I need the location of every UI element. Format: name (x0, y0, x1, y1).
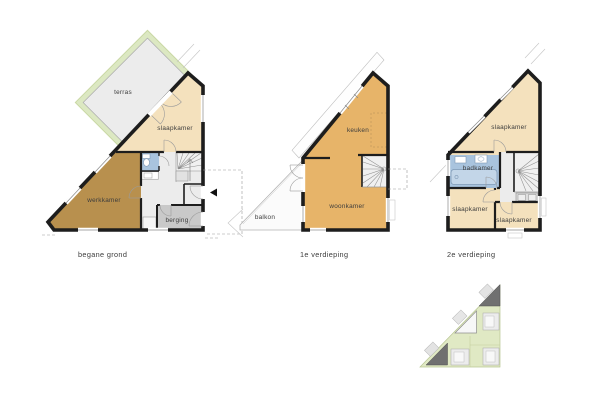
neighbour-outline (228, 209, 243, 237)
plot-dashes (42, 235, 218, 238)
floor-title-2e-verdieping: 2e verdieping (447, 250, 495, 259)
room-label-slaapkamer-boven: slaapkamer (491, 124, 527, 131)
plan-begane-grond: terras slaapkamer werkkamer berging bega… (42, 30, 243, 259)
stair-spiral (362, 155, 388, 187)
room-werkkamer (48, 152, 141, 230)
room-label-badkamer: badkamer (463, 165, 494, 172)
floorplan-sheet: terras slaapkamer werkkamer berging bega… (0, 0, 600, 400)
plot-boundary-dashed (388, 169, 407, 189)
room-label-keuken: keuken (347, 127, 369, 134)
floor-title-begane-grond: begane grond (78, 250, 127, 259)
room-label-werkkamer: werkkamer (86, 197, 121, 204)
room-label-terras: terras (114, 89, 132, 96)
washbasin-room (142, 172, 159, 180)
room-label-berging: berging (165, 217, 188, 224)
stair-spiral (514, 152, 540, 192)
plan-1e-verdieping: balkon keuken woonkamer 1e verdieping (240, 52, 407, 259)
room-label-woonkamer: woonkamer (328, 203, 365, 210)
appliance-counter (516, 193, 538, 202)
floorplan-drawing: terras slaapkamer werkkamer berging bega… (0, 0, 600, 400)
window-sill (508, 233, 522, 238)
stair-closet (176, 171, 188, 181)
room-label-slaapkamer-links: slaapkamer (452, 206, 488, 213)
room-label-balkon: balkon (255, 214, 276, 221)
room-label-slaapkamer-rechts: slaapkamer (496, 217, 532, 224)
floor-title-1e-verdieping: 1e verdieping (300, 250, 348, 259)
plot-boundary-dashed (203, 170, 242, 234)
room-label-slaapkamer: slaapkamer (157, 125, 193, 132)
toilet-fixtures (143, 154, 151, 166)
meter-closet (143, 217, 156, 229)
entrance-arrow-icon (210, 189, 217, 197)
window-sill (390, 200, 396, 220)
plan-2e-verdieping: slaapkamer badkamer slaapkamer slaapkame… (430, 43, 546, 259)
site-plan (420, 284, 500, 367)
